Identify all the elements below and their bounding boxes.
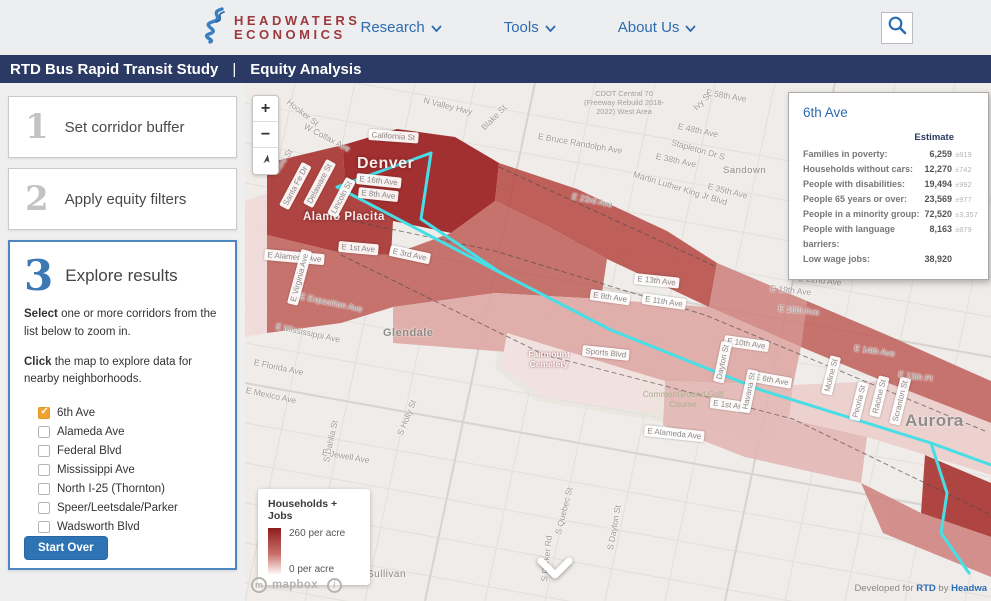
estimate-column-header: Estimate xyxy=(803,132,978,143)
compass-button[interactable] xyxy=(253,148,278,174)
mapbox-logo-icon[interactable]: m xyxy=(251,577,267,593)
info-row: Low wage jobs:38,920 xyxy=(803,252,978,267)
nav-about-us[interactable]: About Us xyxy=(618,19,697,36)
search-button[interactable] xyxy=(881,12,913,44)
step-3-card: 3 Explore results Select one or more cor… xyxy=(8,240,237,570)
rtd-link[interactable]: RTD xyxy=(916,583,936,594)
map-place-label: Sandown xyxy=(723,165,766,176)
attribution-middle: by xyxy=(936,583,951,594)
developer-attribution: Developed for RTD by Headwa xyxy=(854,583,987,594)
info-row-moe: ±742 xyxy=(952,162,978,177)
legend-max-label: 260 per acre xyxy=(289,528,345,539)
checkbox[interactable] xyxy=(38,464,50,476)
info-row-label: Families in poverty: xyxy=(803,147,929,162)
step-1-number: 1 xyxy=(25,107,49,147)
corridor-label: Mississippi Ave xyxy=(57,464,135,476)
logo-line-2: ECONOMICS xyxy=(234,28,360,42)
info-panel-title: 6th Ave xyxy=(803,105,978,120)
info-row-label: Households without cars: xyxy=(803,162,924,177)
step-2-number: 2 xyxy=(25,179,49,219)
step-2-card[interactable]: 2 Apply equity filters xyxy=(8,168,237,230)
corridor-list: 6th Ave Alameda Ave Federal Blvd Mississ… xyxy=(38,403,221,536)
info-row-value: 12,270 xyxy=(924,162,952,177)
attribution-info-icon[interactable]: i xyxy=(327,578,342,593)
step-1-label: Set corridor buffer xyxy=(65,119,185,136)
river-squiggle-icon xyxy=(202,6,226,49)
headwaters-link[interactable]: Headwa xyxy=(951,583,987,594)
title-separator: | xyxy=(232,61,236,78)
map-place-label: Glendale xyxy=(383,327,433,339)
info-row: Families in poverty:6,259±819 xyxy=(803,147,978,162)
bearing-arrow-icon xyxy=(259,153,273,170)
collapse-panel-button[interactable] xyxy=(533,555,577,585)
info-row-value: 6,259 xyxy=(929,147,952,162)
zoom-in-button[interactable]: + xyxy=(253,96,278,122)
info-row-value: 19,494 xyxy=(924,177,952,192)
info-row: People with language barriers:8,163±879 xyxy=(803,222,978,252)
corridor-item-mississippi-ave[interactable]: Mississippi Ave xyxy=(38,460,221,479)
info-row-moe: ±992 xyxy=(952,177,978,192)
checkbox[interactable] xyxy=(38,445,50,457)
step-3-number: 3 xyxy=(24,256,53,296)
corridor-label: 6th Ave xyxy=(57,407,95,419)
info-row-value: 72,520 xyxy=(924,207,952,222)
legend-min-label: 0 per acre xyxy=(289,564,345,575)
info-row-moe: ±879 xyxy=(952,222,978,237)
checkbox[interactable] xyxy=(38,502,50,514)
chevron-down-icon xyxy=(685,19,696,36)
info-row-value: 8,163 xyxy=(929,222,952,237)
headwaters-logo[interactable]: HEADWATERS ECONOMICS xyxy=(202,6,360,49)
checkbox[interactable] xyxy=(38,521,50,533)
nav-research[interactable]: Research xyxy=(360,19,441,36)
corridor-item-6th-ave[interactable]: 6th Ave xyxy=(38,403,221,422)
map-container: Denver Alamo Placita Glendale Aurora Sul… xyxy=(245,83,991,601)
chevron-down-large-icon xyxy=(533,572,577,589)
checkbox[interactable] xyxy=(38,483,50,495)
legend-title: Households + Jobs xyxy=(268,498,362,522)
info-row-moe: ±819 xyxy=(952,147,978,162)
corridor-item-north-i25[interactable]: North I-25 (Thornton) xyxy=(38,479,221,498)
corridor-item-speer-leetsdale-parker[interactable]: Speer/Leetsdale/Parker xyxy=(38,498,221,517)
info-row: People 65 years or over:23,569±977 xyxy=(803,192,978,207)
info-row-moe: ±3,357 xyxy=(952,207,978,222)
info-row-label: People with language barriers: xyxy=(803,222,929,252)
info-row: People in a minority group:72,520±3,357 xyxy=(803,207,978,222)
info-row-label: People with disabilities: xyxy=(803,177,924,192)
checkbox[interactable] xyxy=(38,407,50,419)
chevron-down-icon xyxy=(431,19,442,36)
instruction-select: Select one or more corridors from the li… xyxy=(24,306,221,342)
app-window: HEADWATERS ECONOMICS Research Tools Abou… xyxy=(0,0,991,601)
corridor-label: Alameda Ave xyxy=(57,426,125,438)
site-header: HEADWATERS ECONOMICS Research Tools Abou… xyxy=(0,0,991,55)
map-place-label: Fairmount Cemetery xyxy=(517,349,581,369)
map-place-label: CDOT Central 70 (Freeway Rebuild 2018-20… xyxy=(581,89,667,116)
corridor-label: Federal Blvd xyxy=(57,445,122,457)
nav-research-label: Research xyxy=(360,19,424,36)
corridor-label: Speer/Leetsdale/Parker xyxy=(57,502,178,514)
step-2-label: Apply equity filters xyxy=(65,191,187,208)
step-1-card[interactable]: 1 Set corridor buffer xyxy=(8,96,237,158)
info-row-label: Low wage jobs: xyxy=(803,252,924,267)
map-place-label: Alamo Placita xyxy=(303,211,385,223)
nav-tools[interactable]: Tools xyxy=(504,19,556,36)
zoom-out-button[interactable]: − xyxy=(253,122,278,148)
corridor-item-alameda-ave[interactable]: Alameda Ave xyxy=(38,422,221,441)
corridor-label: North I-25 (Thornton) xyxy=(57,483,165,495)
mapbox-wordmark[interactable]: mapbox xyxy=(272,579,318,591)
page-title-bar: RTD Bus Rapid Transit Study | Equity Ana… xyxy=(0,55,991,83)
search-icon xyxy=(887,15,907,40)
mapbox-attribution: m mapbox i xyxy=(251,577,342,593)
map-zoom-control: + − xyxy=(252,95,279,175)
attribution-prefix: Developed for xyxy=(854,583,916,594)
steps-sidebar: 1 Set corridor buffer 2 Apply equity fil… xyxy=(0,83,245,601)
info-row: Households without cars:12,270±742 xyxy=(803,162,978,177)
info-row-value: 23,569 xyxy=(924,192,952,207)
info-row-label: People 65 years or over: xyxy=(803,192,924,207)
info-row-moe: ±977 xyxy=(952,192,978,207)
instruction-select-bold: Select xyxy=(24,308,58,320)
start-over-button[interactable]: Start Over xyxy=(24,536,108,560)
map-place-label: Sullivan xyxy=(367,569,406,580)
nav-tools-label: Tools xyxy=(504,19,539,36)
step-3-label: Explore results xyxy=(65,266,177,286)
logo-line-1: HEADWATERS xyxy=(234,14,360,28)
map-place-label: Denver xyxy=(357,155,414,173)
corridor-item-wadsworth-blvd[interactable]: Wadsworth Blvd xyxy=(38,517,221,536)
instruction-click-bold: Click xyxy=(24,356,52,368)
checkbox[interactable] xyxy=(38,426,50,438)
page-subtitle: Equity Analysis xyxy=(250,61,361,78)
corridor-label: Wadsworth Blvd xyxy=(57,521,140,533)
nav-about-us-label: About Us xyxy=(618,19,680,36)
instruction-click: Click the map to explore data for nearby… xyxy=(24,354,221,390)
corridor-item-federal-blvd[interactable]: Federal Blvd xyxy=(38,441,221,460)
legend-gradient-bar xyxy=(268,528,281,575)
info-row: People with disabilities:19,494±992 xyxy=(803,177,978,192)
corridor-info-panel: 6th Ave Estimate Families in poverty:6,2… xyxy=(788,92,989,280)
map-legend: Households + Jobs 260 per acre 0 per acr… xyxy=(258,489,370,585)
map-place-label: Aurora xyxy=(905,411,964,431)
chevron-down-icon xyxy=(545,19,556,36)
info-row-label: People in a minority group: xyxy=(803,207,924,222)
step-3-header[interactable]: 3 Explore results xyxy=(24,256,221,296)
info-row-value: 38,920 xyxy=(924,252,952,267)
logo-wordmark: HEADWATERS ECONOMICS xyxy=(234,14,360,42)
page-title: RTD Bus Rapid Transit Study xyxy=(10,61,218,78)
